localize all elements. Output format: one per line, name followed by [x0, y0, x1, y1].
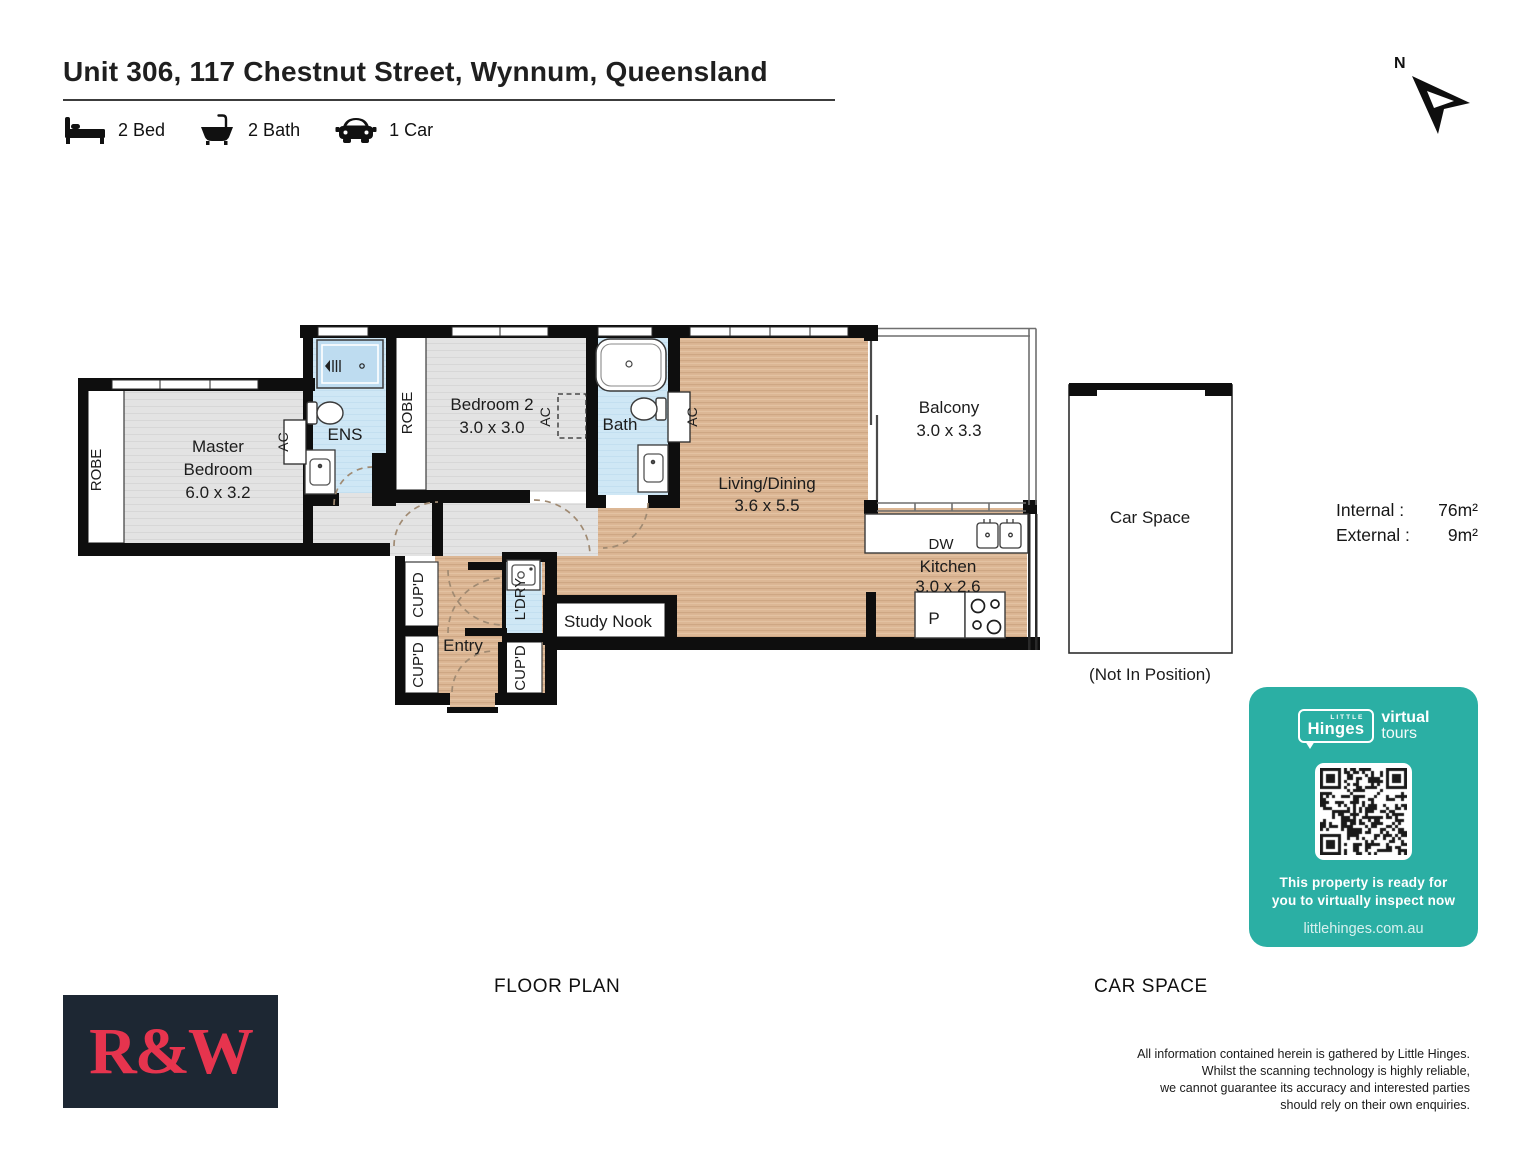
room-dims-bedroom2: 3.0 x 3.0: [459, 418, 524, 437]
badge-message-line1: This property is ready for: [1249, 874, 1478, 892]
internal-area-value: 76m²: [1438, 500, 1478, 521]
label-ac-living: AC: [684, 407, 700, 426]
disclaimer-line: All information contained herein is gath…: [1050, 1046, 1470, 1063]
label-car-space: Car Space: [1110, 508, 1190, 527]
north-label: N: [1394, 55, 1406, 73]
room-label-bedroom2: Bedroom 2: [450, 395, 533, 414]
room-dims-kitchen: 3.0 x 2.6: [915, 577, 980, 596]
internal-area-label: Internal :: [1336, 500, 1404, 521]
room-label-balcony: Balcony: [919, 398, 980, 417]
bath-basin-icon: [638, 445, 668, 492]
room-label-living: Living/Dining: [718, 474, 815, 493]
page-title: Unit 306, 117 Chestnut Street, Wynnum, Q…: [63, 56, 768, 88]
speech-bubble-tail-icon: [1305, 741, 1315, 749]
section-floor-plan: FLOOR PLAN: [494, 976, 620, 998]
label-laundry: L'DRY: [512, 578, 529, 621]
label-cupboard-3: CUP'D: [512, 645, 529, 691]
external-area-value: 9m²: [1448, 525, 1478, 546]
label-robe-bedroom2: ROBE: [399, 392, 416, 435]
disclaimer-line: Whilst the scanning technology is highly…: [1050, 1063, 1470, 1080]
title-divider: [63, 99, 835, 101]
little-hinges-logo: LITTLE Hinges virtual tours: [1249, 709, 1478, 743]
room-dims-balcony: 3.0 x 3.3: [916, 421, 981, 440]
room-dims-master: 6.0 x 3.2: [185, 483, 250, 502]
disclaimer: All information contained herein is gath…: [1050, 1046, 1470, 1114]
ens-toilet-icon: [307, 402, 343, 424]
feature-beds-label: 2 Bed: [118, 120, 165, 141]
disclaimer-line: should rely on their own enquiries.: [1050, 1097, 1470, 1114]
feature-row: 2 Bed 2 Bath 1 Car: [63, 112, 453, 148]
label-cupboard-1: CUP'D: [410, 572, 427, 618]
badge-message: This property is ready for you to virtua…: [1249, 874, 1478, 910]
agency-logo-text: R&W: [89, 1014, 252, 1090]
bed-icon: [63, 112, 107, 148]
floor-plan-page: Master Bedroom 6.0 x 3.2 Bedroom 2 3.0 x…: [0, 0, 1533, 1150]
room-label-bath: Bath: [603, 415, 638, 434]
feature-cars-label: 1 Car: [389, 120, 433, 141]
label-study-nook: Study Nook: [564, 612, 652, 631]
room-label-master-2: Bedroom: [184, 460, 253, 479]
feature-beds: 2 Bed: [63, 112, 165, 148]
virtual-tour-badge: LITTLE Hinges virtual tours This propert…: [1249, 687, 1478, 947]
qr-code: [1320, 768, 1407, 855]
agency-logo: R&W: [63, 995, 278, 1108]
label-entry: Entry: [443, 636, 483, 655]
feature-baths-label: 2 Bath: [248, 120, 300, 141]
external-area-label: External :: [1336, 525, 1410, 546]
label-ac-bedroom2: AC: [537, 407, 553, 426]
area-summary: Internal : 76m² External : 9m²: [1336, 500, 1478, 550]
room-label-ens: ENS: [328, 425, 363, 444]
room-dims-living: 3.6 x 5.5: [734, 496, 799, 515]
shower-icon: [317, 340, 383, 388]
logo-tours: tours: [1381, 726, 1429, 742]
north-arrow-icon: [1412, 76, 1470, 134]
hinges-speech-bubble: LITTLE Hinges: [1298, 709, 1375, 743]
qr-code-box: [1315, 763, 1412, 860]
bath-icon: [199, 112, 237, 148]
logo-virtual: virtual: [1381, 710, 1429, 726]
label-robe-master: ROBE: [88, 449, 105, 492]
badge-url: littlehinges.com.au: [1249, 921, 1478, 937]
label-cupboard-2: CUP'D: [410, 642, 427, 688]
disclaimer-line: we cannot guarantee its accuracy and int…: [1050, 1080, 1470, 1097]
ens-basin-icon: [305, 450, 335, 494]
floor-plan-drawing: Master Bedroom 6.0 x 3.2 Bedroom 2 3.0 x…: [0, 0, 1533, 1150]
badge-message-line2: you to virtually inspect now: [1249, 892, 1478, 910]
section-car-space: CAR SPACE: [1094, 976, 1208, 998]
label-dw: DW: [929, 536, 955, 553]
virtual-tours-wordmark: virtual tours: [1381, 710, 1429, 742]
feature-cars: 1 Car: [334, 112, 433, 148]
car-icon: [334, 112, 378, 148]
label-ac-master: AC: [275, 432, 291, 451]
feature-baths: 2 Bath: [199, 112, 300, 148]
logo-hinges: Hinges: [1308, 721, 1365, 738]
label-not-in-position: (Not In Position): [1089, 665, 1211, 684]
bathtub-icon: [596, 339, 666, 391]
room-label-master-1: Master: [192, 437, 244, 456]
room-label-kitchen: Kitchen: [920, 557, 977, 576]
label-pantry: P: [928, 609, 939, 628]
